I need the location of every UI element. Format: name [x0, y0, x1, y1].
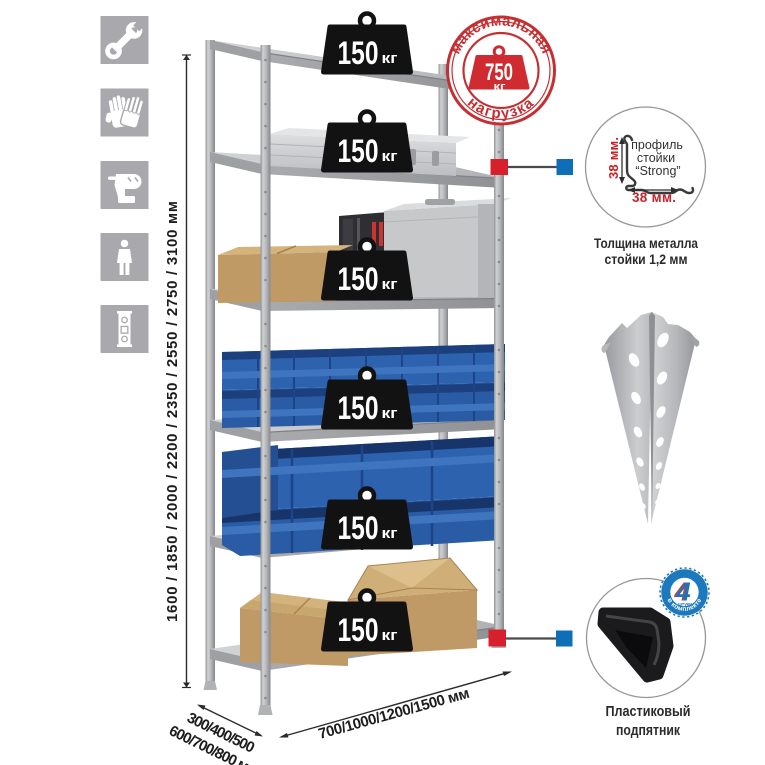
svg-text:150: 150: [338, 390, 379, 426]
svg-text:150: 150: [338, 510, 379, 546]
svg-text:1600 / 1850 / 2000 / 2200 / 23: 1600 / 1850 / 2000 / 2200 / 2350 / 2550 …: [164, 201, 181, 622]
svg-text:стойки 1,2 мм: стойки 1,2 мм: [605, 251, 688, 267]
svg-text:Пластиковый: Пластиковый: [606, 703, 691, 720]
svg-text:150: 150: [338, 35, 379, 71]
svg-text:150: 150: [338, 261, 379, 297]
svg-text:профиль: профиль: [631, 138, 683, 152]
svg-text:“Strong”: “Strong”: [635, 164, 680, 178]
svg-text:Толщина металла: Толщина металла: [594, 235, 698, 251]
svg-text:38 мм.: 38 мм.: [606, 137, 621, 179]
svg-text:38 мм.: 38 мм.: [632, 190, 676, 205]
svg-text:кг: кг: [382, 148, 398, 165]
svg-text:кг: кг: [382, 405, 398, 422]
svg-text:кг: кг: [382, 50, 398, 67]
svg-text:150: 150: [338, 612, 379, 648]
svg-text:стойки: стойки: [637, 151, 675, 165]
svg-text:кг: кг: [382, 525, 398, 542]
svg-text:кг: кг: [382, 276, 398, 293]
svg-text:150: 150: [338, 133, 379, 169]
svg-text:подпятник: подпятник: [616, 722, 680, 739]
svg-text:кг: кг: [382, 627, 398, 644]
svg-text:кг: кг: [494, 81, 506, 93]
